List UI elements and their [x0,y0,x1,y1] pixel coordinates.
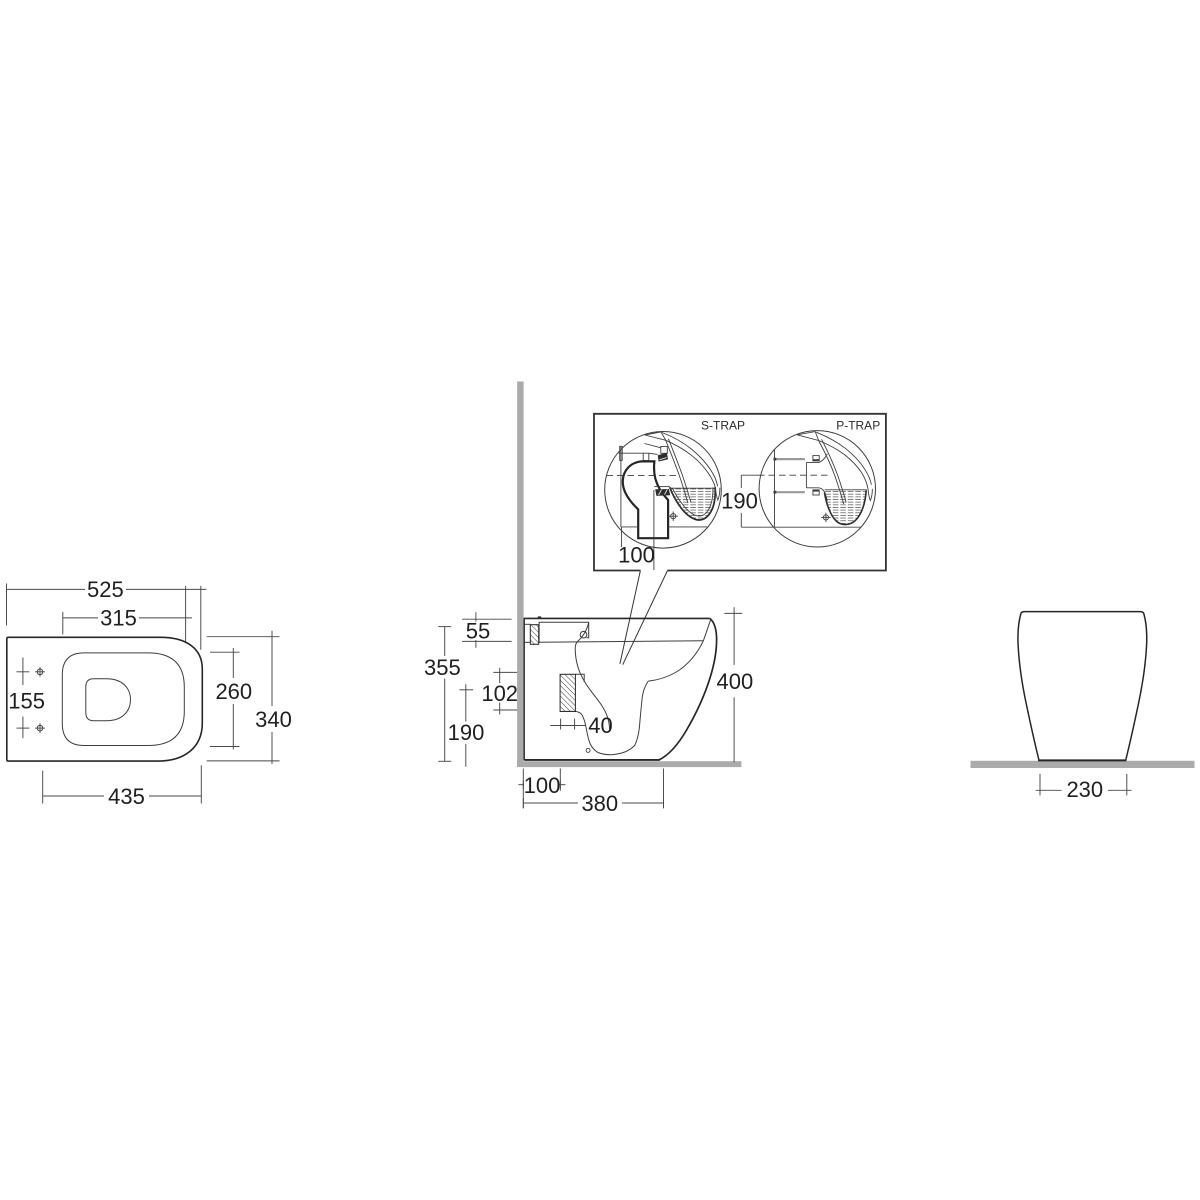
svg-text:40: 40 [588,713,612,738]
svg-text:190: 190 [721,488,758,513]
svg-text:315: 315 [100,606,137,631]
svg-text:260: 260 [215,679,252,704]
svg-text:100: 100 [524,773,561,798]
svg-text:S-TRAP: S-TRAP [701,419,745,433]
svg-text:435: 435 [108,784,145,809]
svg-text:230: 230 [1066,777,1103,802]
svg-text:340: 340 [255,707,292,732]
svg-text:355: 355 [424,655,461,680]
svg-text:102: 102 [481,681,518,706]
svg-text:400: 400 [717,669,754,694]
svg-text:190: 190 [448,720,485,745]
svg-text:525: 525 [87,577,124,602]
svg-text:100: 100 [618,542,655,567]
svg-text:155: 155 [8,689,45,714]
svg-text:P-TRAP: P-TRAP [836,419,880,433]
svg-text:55: 55 [466,618,490,643]
svg-text:380: 380 [581,791,618,816]
